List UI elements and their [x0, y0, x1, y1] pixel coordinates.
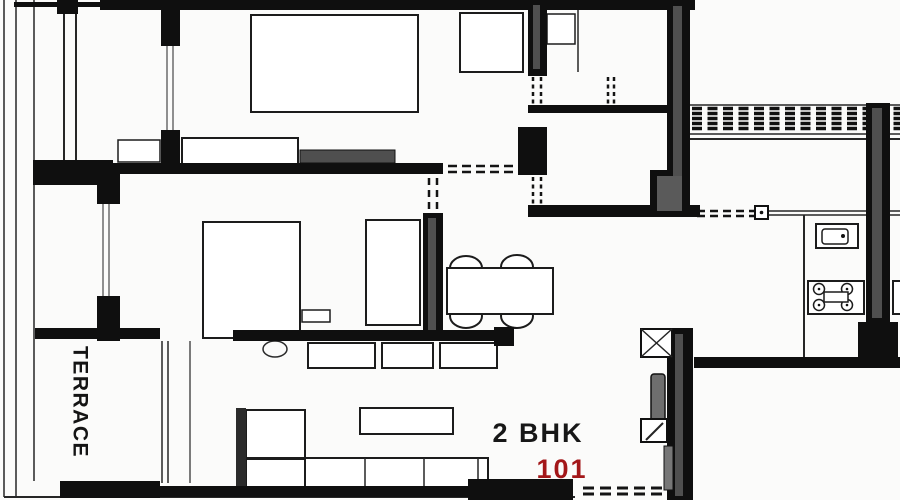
sofa-seat-left-1 [246, 410, 305, 458]
bedrooms-divider-wall [110, 163, 443, 174]
bathroom1-bottom-wall [528, 105, 690, 113]
top-wall-main [100, 0, 695, 10]
wall-core-foyer [675, 334, 683, 496]
wall-core-bathroom1-left [533, 5, 540, 69]
bathroom1-wc [547, 14, 575, 44]
dining-wall-node [494, 327, 514, 346]
stove-adjacent-unit [893, 281, 900, 314]
closet-bedroom1 [460, 13, 523, 72]
stove-burner-dot [846, 288, 849, 291]
sofa-bottom [305, 458, 488, 487]
bedroom2-left-wall-top [97, 168, 120, 204]
unit-number-label: 101 [536, 454, 587, 484]
terrace-bottom-wall [60, 481, 160, 498]
bed-2 [203, 222, 300, 338]
floorplan-page: TERRACE 2 BHK 101 [0, 0, 900, 500]
wall-core-bedroom2-right [428, 218, 436, 330]
tv-unit-panel [236, 408, 246, 490]
bedroom2-top-wall-stub [35, 166, 97, 175]
bedroom2-bottom-wall [35, 328, 160, 339]
kitchen-counter-box-dot [760, 211, 764, 215]
bedside-table [302, 310, 330, 322]
dresser-bedroom1 [300, 150, 395, 163]
top-left-wall-node [57, 0, 78, 14]
sideboard-3 [440, 343, 497, 368]
stove-mid-plate [824, 292, 848, 302]
floorplan-shapes [4, 0, 900, 500]
bathroom2-left-wall [518, 127, 547, 175]
shower-area [657, 176, 682, 211]
stove-burner-dot [818, 304, 821, 307]
kitchen-bottom-wall [694, 357, 900, 368]
stove-burner-dot [846, 304, 849, 307]
main-door [641, 419, 667, 442]
wall-core-kitchen-right [872, 108, 882, 318]
sink-faucet-dot [841, 234, 845, 238]
sideboard-1 [308, 343, 375, 368]
floorplan-svg: TERRACE 2 BHK 101 [0, 0, 900, 500]
terrace-label: TERRACE [69, 346, 92, 458]
dining-table [447, 268, 553, 314]
center-table [360, 408, 453, 434]
entrance-door-stub [664, 446, 673, 490]
wardrobe-bedroom2 [366, 220, 420, 325]
stove-burner-dot [818, 288, 821, 291]
dining-wall [233, 330, 496, 341]
kitchen-right-wall-node [858, 322, 898, 362]
bedroom1-left-wall-top [161, 0, 180, 46]
sofa-seat-left-2 [246, 459, 305, 487]
bed-1 [251, 15, 418, 112]
wardrobe-bedroom1 [182, 138, 298, 164]
wash-basin-bowl [263, 341, 287, 357]
wall-core-bath-right [673, 6, 682, 196]
sideboard-2 [382, 343, 433, 368]
terrace-planter [118, 140, 160, 162]
living-bottom-wall [160, 486, 468, 497]
unit-type-label: 2 BHK [492, 418, 583, 448]
